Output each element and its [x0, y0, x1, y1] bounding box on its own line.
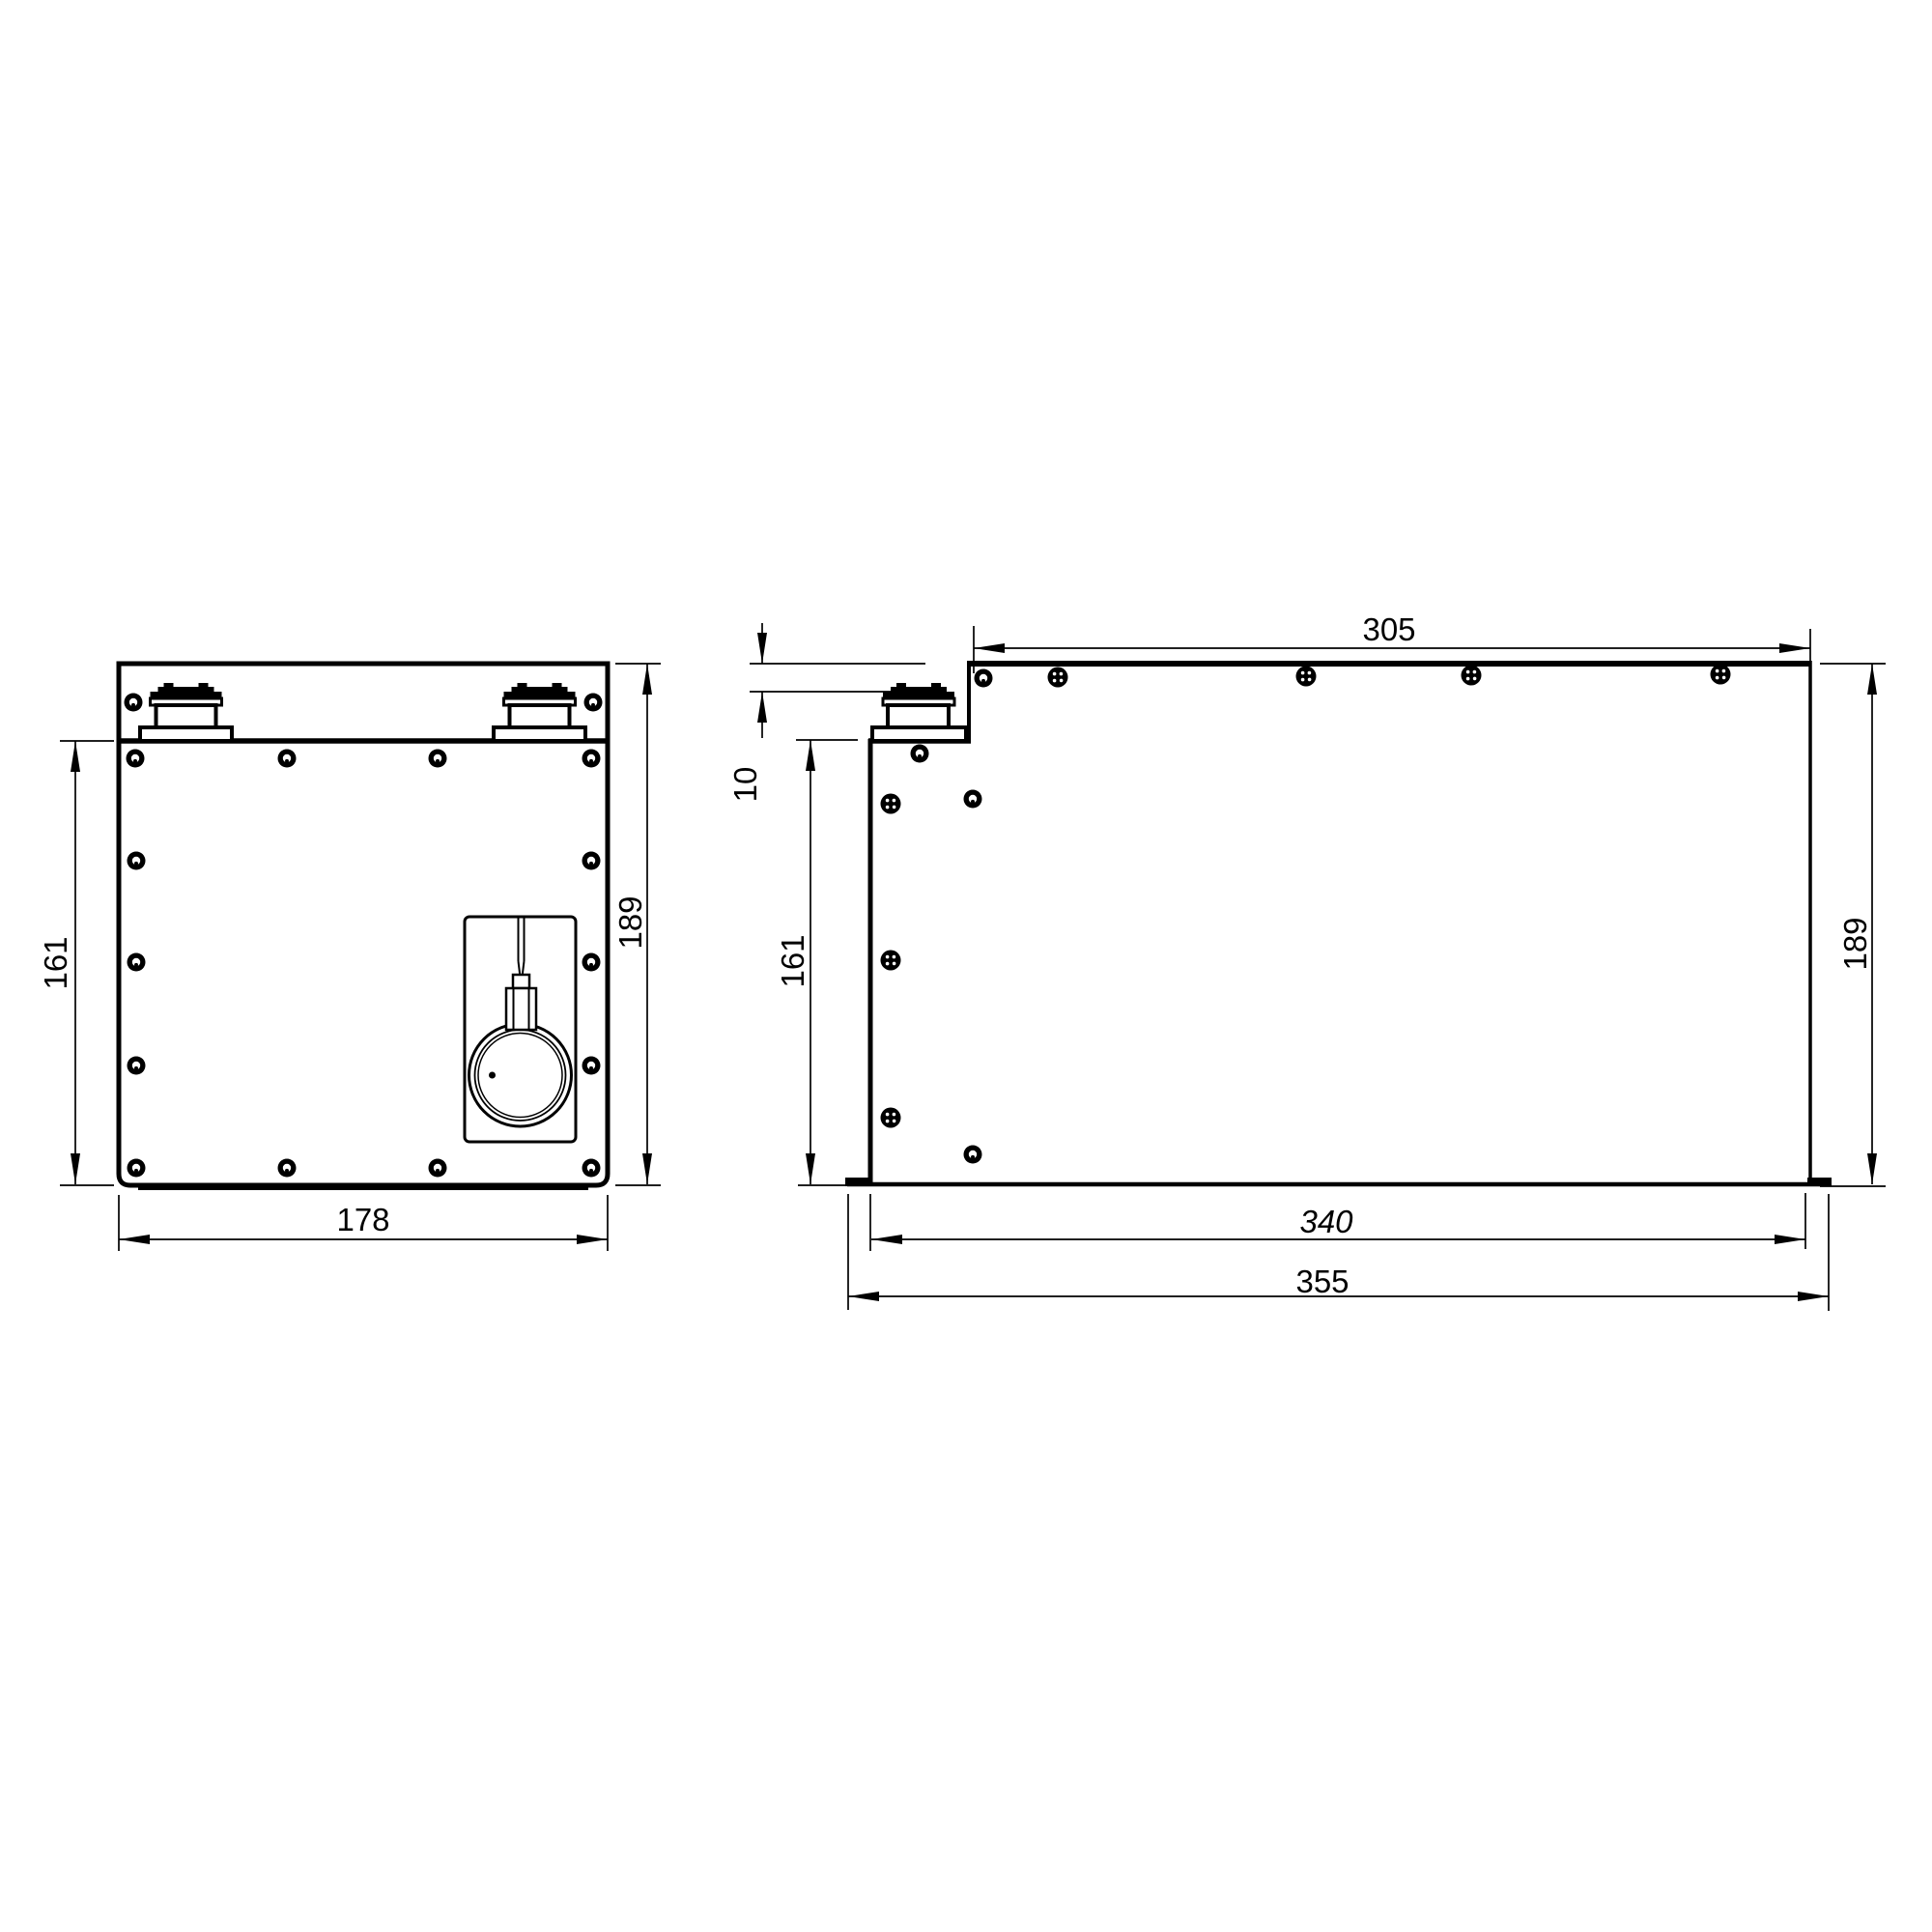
technical-drawing: 161 189 178	[0, 0, 1932, 1932]
dim-label: 189	[1837, 917, 1873, 970]
front-view: 161 189 178	[38, 664, 661, 1251]
arrowhead-right	[1779, 643, 1810, 653]
terminal-base-plate	[494, 727, 585, 741]
terminal-body	[156, 705, 216, 727]
screw	[429, 1159, 447, 1178]
dim-label: 189	[612, 895, 648, 949]
screw	[964, 790, 982, 809]
arrowhead-up	[806, 740, 815, 771]
arrowhead-right	[1775, 1235, 1805, 1244]
terminal-cap-nub	[553, 683, 562, 688]
plug-neck	[513, 975, 529, 988]
screw	[128, 1159, 146, 1178]
arrowhead-left	[848, 1292, 879, 1301]
screw	[1296, 667, 1317, 687]
arrowhead-up	[1867, 664, 1877, 695]
side-view: 305 10 161 189	[727, 611, 1886, 1311]
terminal-body	[510, 705, 570, 727]
arrowhead-left	[974, 643, 1005, 653]
screw	[1462, 666, 1482, 686]
dim-label: 161	[38, 936, 73, 989]
arrowhead-down	[757, 633, 767, 664]
dim-side-panel-height: 161	[775, 740, 858, 1185]
arrowhead-up	[757, 692, 767, 723]
arrowhead-right	[577, 1235, 608, 1244]
terminal-cap-nub	[199, 683, 209, 688]
terminal-post-left	[140, 683, 232, 741]
terminal-cap-nub	[896, 683, 906, 688]
screw	[429, 750, 447, 768]
screw	[125, 694, 143, 712]
arrowhead-left	[871, 1235, 902, 1244]
arrowhead-left	[119, 1235, 150, 1244]
arrowhead-right	[1798, 1292, 1829, 1301]
screw	[128, 852, 146, 870]
arrowhead-down	[1867, 1153, 1877, 1184]
connector-key-dot	[489, 1072, 496, 1079]
screw	[582, 1057, 601, 1075]
screw	[1048, 668, 1068, 688]
dim-side-base-length: 340	[870, 1193, 1805, 1251]
screw	[582, 852, 601, 870]
dim-label: 161	[775, 934, 810, 987]
arrowhead-up	[71, 741, 80, 772]
screw	[881, 794, 901, 814]
screw	[582, 750, 601, 768]
screw	[881, 1108, 901, 1128]
mounting-flange-left	[845, 1178, 872, 1186]
screw	[582, 1159, 601, 1178]
dim-label: 178	[336, 1202, 389, 1237]
mounting-flange-right	[1807, 1178, 1832, 1186]
plug-body	[506, 988, 536, 1030]
screw	[278, 1159, 297, 1178]
dim-front-width: 178	[119, 1195, 608, 1251]
dim-front-height: 189	[612, 664, 661, 1185]
terminal-cap-nub	[518, 683, 527, 688]
dim-label: 340	[1299, 1204, 1353, 1239]
screw	[128, 953, 146, 972]
dim-label: 10	[727, 767, 763, 803]
terminal-cap-nub	[164, 683, 174, 688]
arrowhead-down	[642, 1153, 652, 1184]
side-screws	[881, 665, 1731, 1164]
screw	[584, 694, 603, 712]
screw	[582, 953, 601, 972]
screw	[1711, 665, 1731, 685]
terminal-base-plate	[140, 727, 232, 741]
dim-side-height: 189	[1820, 664, 1886, 1186]
terminal-cap-nub	[931, 683, 941, 688]
screw	[127, 750, 145, 768]
screw	[975, 669, 993, 688]
screw	[964, 1146, 982, 1164]
screw	[128, 1057, 146, 1075]
screw	[911, 745, 929, 763]
screw	[881, 951, 901, 971]
terminal-base-plate	[872, 727, 966, 741]
arrowhead-down	[806, 1153, 815, 1184]
drawing-canvas: 161 189 178	[0, 0, 1932, 1932]
dim-front-panel-height: 161	[38, 741, 114, 1185]
terminal-post-right	[494, 683, 585, 741]
screw	[278, 750, 297, 768]
dim-label: 305	[1362, 611, 1415, 647]
connector-recess	[465, 917, 576, 1142]
arrowhead-down	[71, 1153, 80, 1184]
terminal-body	[888, 705, 949, 727]
dim-label: 355	[1295, 1264, 1349, 1299]
arrowhead-up	[642, 664, 652, 695]
